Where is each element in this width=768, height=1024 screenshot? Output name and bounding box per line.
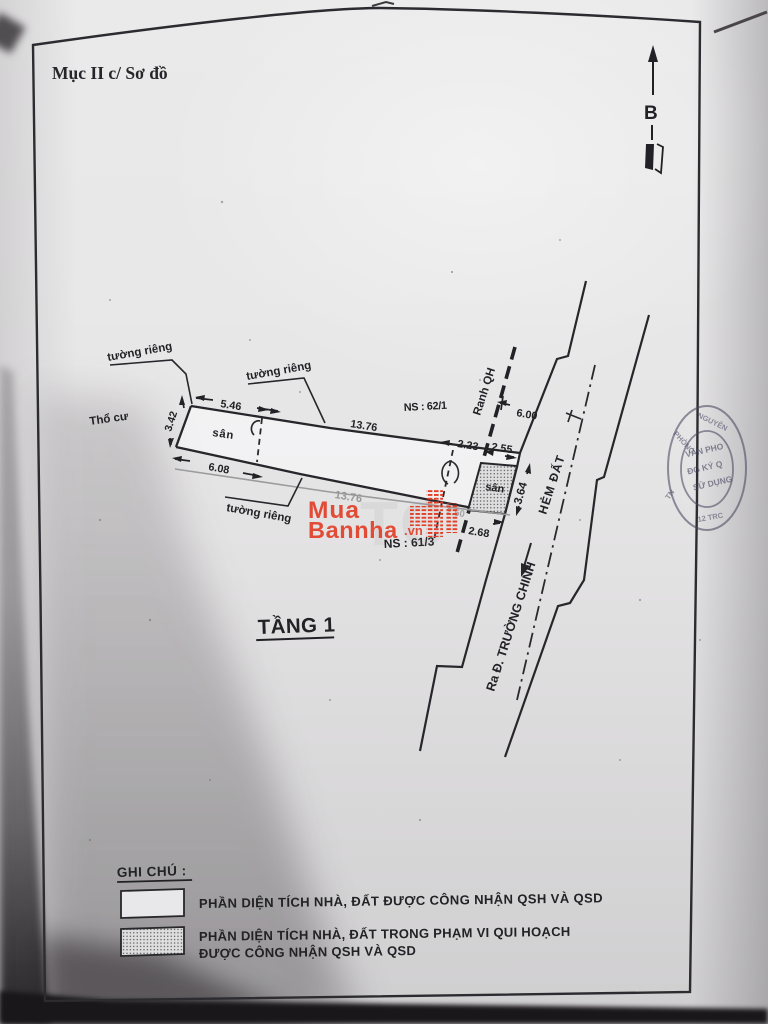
svg-text:TN: TN	[663, 488, 676, 501]
svg-text:3.42: 3.42	[162, 410, 180, 433]
svg-text:PHẦN DIỆN TÍCH NHÀ, ĐẤT ĐƯỢC: PHẦN DIỆN TÍCH NHÀ, ĐẤT ĐƯỢC CÔNG NHẬN Q…	[199, 890, 603, 911]
svg-text:NS : 62/1: NS : 62/1	[404, 400, 448, 414]
svg-text:Ranh QH: Ranh QH	[471, 366, 498, 417]
svg-text:2.68: 2.68	[468, 525, 491, 540]
svg-text:PHẦN DIỆN TÍCH NHÀ, ĐẤT TRONG: PHẦN DIỆN TÍCH NHÀ, ĐẤT TRONG PHẠM VI QU…	[199, 924, 571, 944]
svg-text:TẦNG 1: TẦNG 1	[257, 613, 335, 639]
svg-text:ĐG KÝ Q: ĐG KÝ Q	[686, 458, 724, 477]
svg-text:3.64: 3.64	[512, 480, 530, 505]
svg-text:Bannha: Bannha	[308, 517, 398, 543]
svg-text:Ra Đ. TRƯỜNG CHINH: Ra Đ. TRƯỜNG CHINH	[483, 560, 539, 693]
svg-text:NGUYÊN: NGUYÊN	[696, 411, 729, 433]
svg-text:6.00: 6.00	[515, 407, 538, 422]
svg-text:B: B	[644, 103, 658, 124]
svg-text:12 TRC: 12 TRC	[697, 511, 725, 524]
svg-text:ĐƯỢC CÔNG NHẬN QSH VÀ QSD: ĐƯỢC CÔNG NHẬN QSH VÀ QSD	[199, 943, 416, 961]
svg-text:Thổ cư: Thổ cư	[89, 411, 130, 428]
svg-text:GHI CHÚ :: GHI CHÚ :	[117, 863, 187, 880]
svg-text:tường riêng: tường riêng	[245, 360, 312, 383]
svg-text:Mục II c/ Sơ đồ: Mục II c/ Sơ đồ	[52, 63, 168, 83]
